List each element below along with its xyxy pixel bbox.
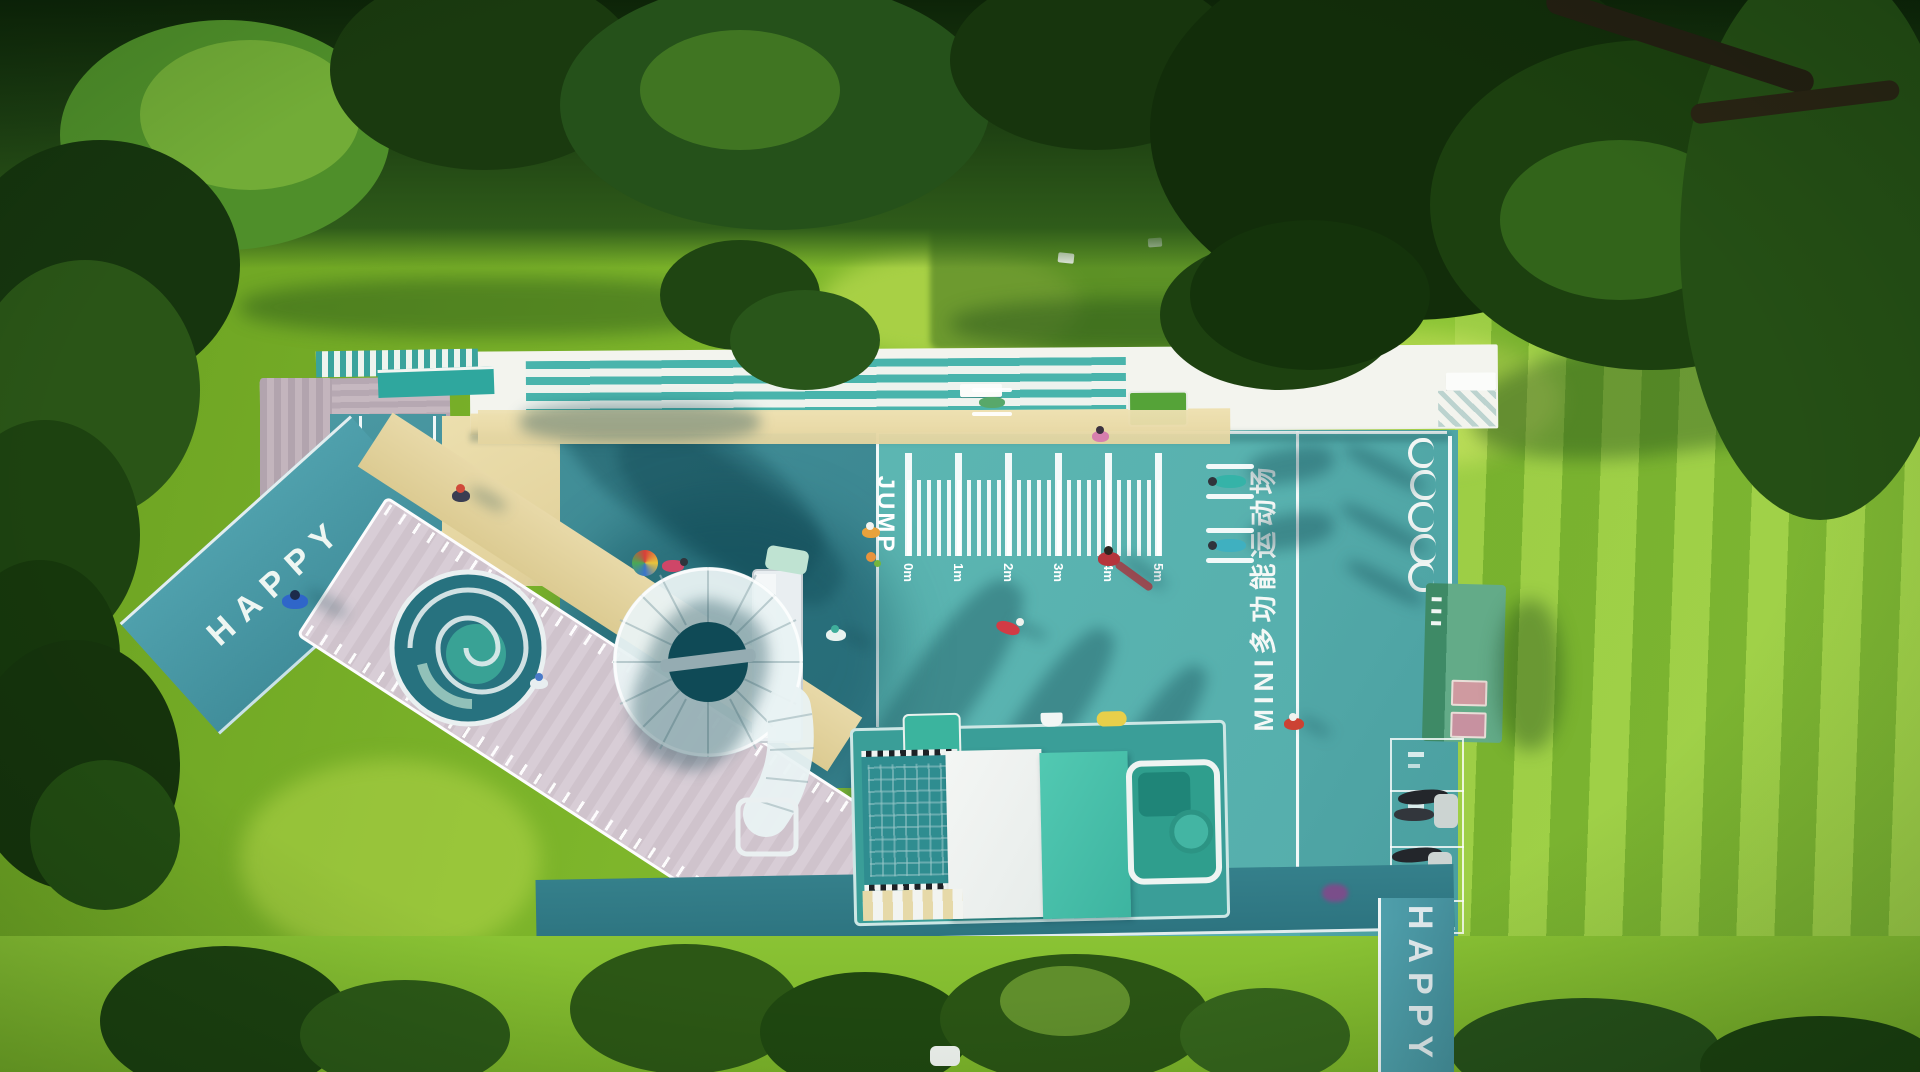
spiral-climber [388,568,548,728]
ruler-label: 3m [1051,563,1066,582]
aerial-playground-render: HAPPY [0,0,1920,1072]
bush [1700,1016,1920,1072]
umbrella-icon [632,550,692,586]
ruler-major-tick [1155,453,1162,556]
fitness-hook [1408,438,1434,468]
fitness-hook [1408,502,1434,532]
ruler-major-tick [905,453,912,556]
bush [570,944,800,1072]
roof-stair-hatch [1438,390,1496,426]
ruler-major-tick [1055,453,1062,556]
kiosk [1422,583,1506,743]
person-figure [996,616,1040,644]
small-white-object [930,1046,960,1066]
fitness-rail [1448,436,1452,592]
exit-path: HAPPY [1378,898,1454,1072]
exit-path-label: HAPPY [1399,886,1439,1072]
situp-station [1206,528,1258,564]
ruler-label: 1m [951,563,966,582]
kiosk-shadow [1498,600,1562,750]
jump-label: JUMP [873,455,899,575]
train-funnel-icon [1041,712,1063,726]
person-figure [826,624,866,652]
exercise-machine [1394,786,1460,836]
ruler-minor-ticks [907,480,1165,556]
person-figure [530,672,566,700]
person-figure [452,484,492,514]
person-figure [282,586,338,620]
ruler-major-tick [1105,453,1112,556]
canopy-teal-edge [378,366,495,398]
flower-icon [874,560,881,567]
leaf-shadow-on-band [520,402,760,442]
bottom-grass [0,936,1920,1072]
bush-highlight [1000,966,1130,1036]
scooter-icon [1096,711,1126,727]
climb-net [868,763,953,877]
striped-ground [862,889,963,921]
playground-plot: HAPPY [0,0,1920,1072]
kiosk-window [1450,712,1487,739]
bush [1450,998,1720,1072]
kiosk-window [1451,680,1488,707]
person-figure [1322,880,1362,910]
ruler-major-tick [1005,453,1012,556]
ruler-major-tick [955,453,962,556]
person-figure [1092,426,1126,452]
court-boundary-line [1296,431,1299,931]
ruler-label: 0m [901,563,916,582]
situp-station [972,388,1016,418]
roof-sign [1446,372,1496,390]
person-figure [862,522,898,548]
situp-station [1206,464,1258,500]
ruler-label: 2m [1001,563,1016,582]
train-engine [1126,759,1223,885]
bush [1180,988,1350,1072]
train-canopy-mint [1039,751,1131,919]
person-figure [1098,546,1158,592]
train-pad [850,720,1230,926]
person-figure [1284,712,1324,740]
